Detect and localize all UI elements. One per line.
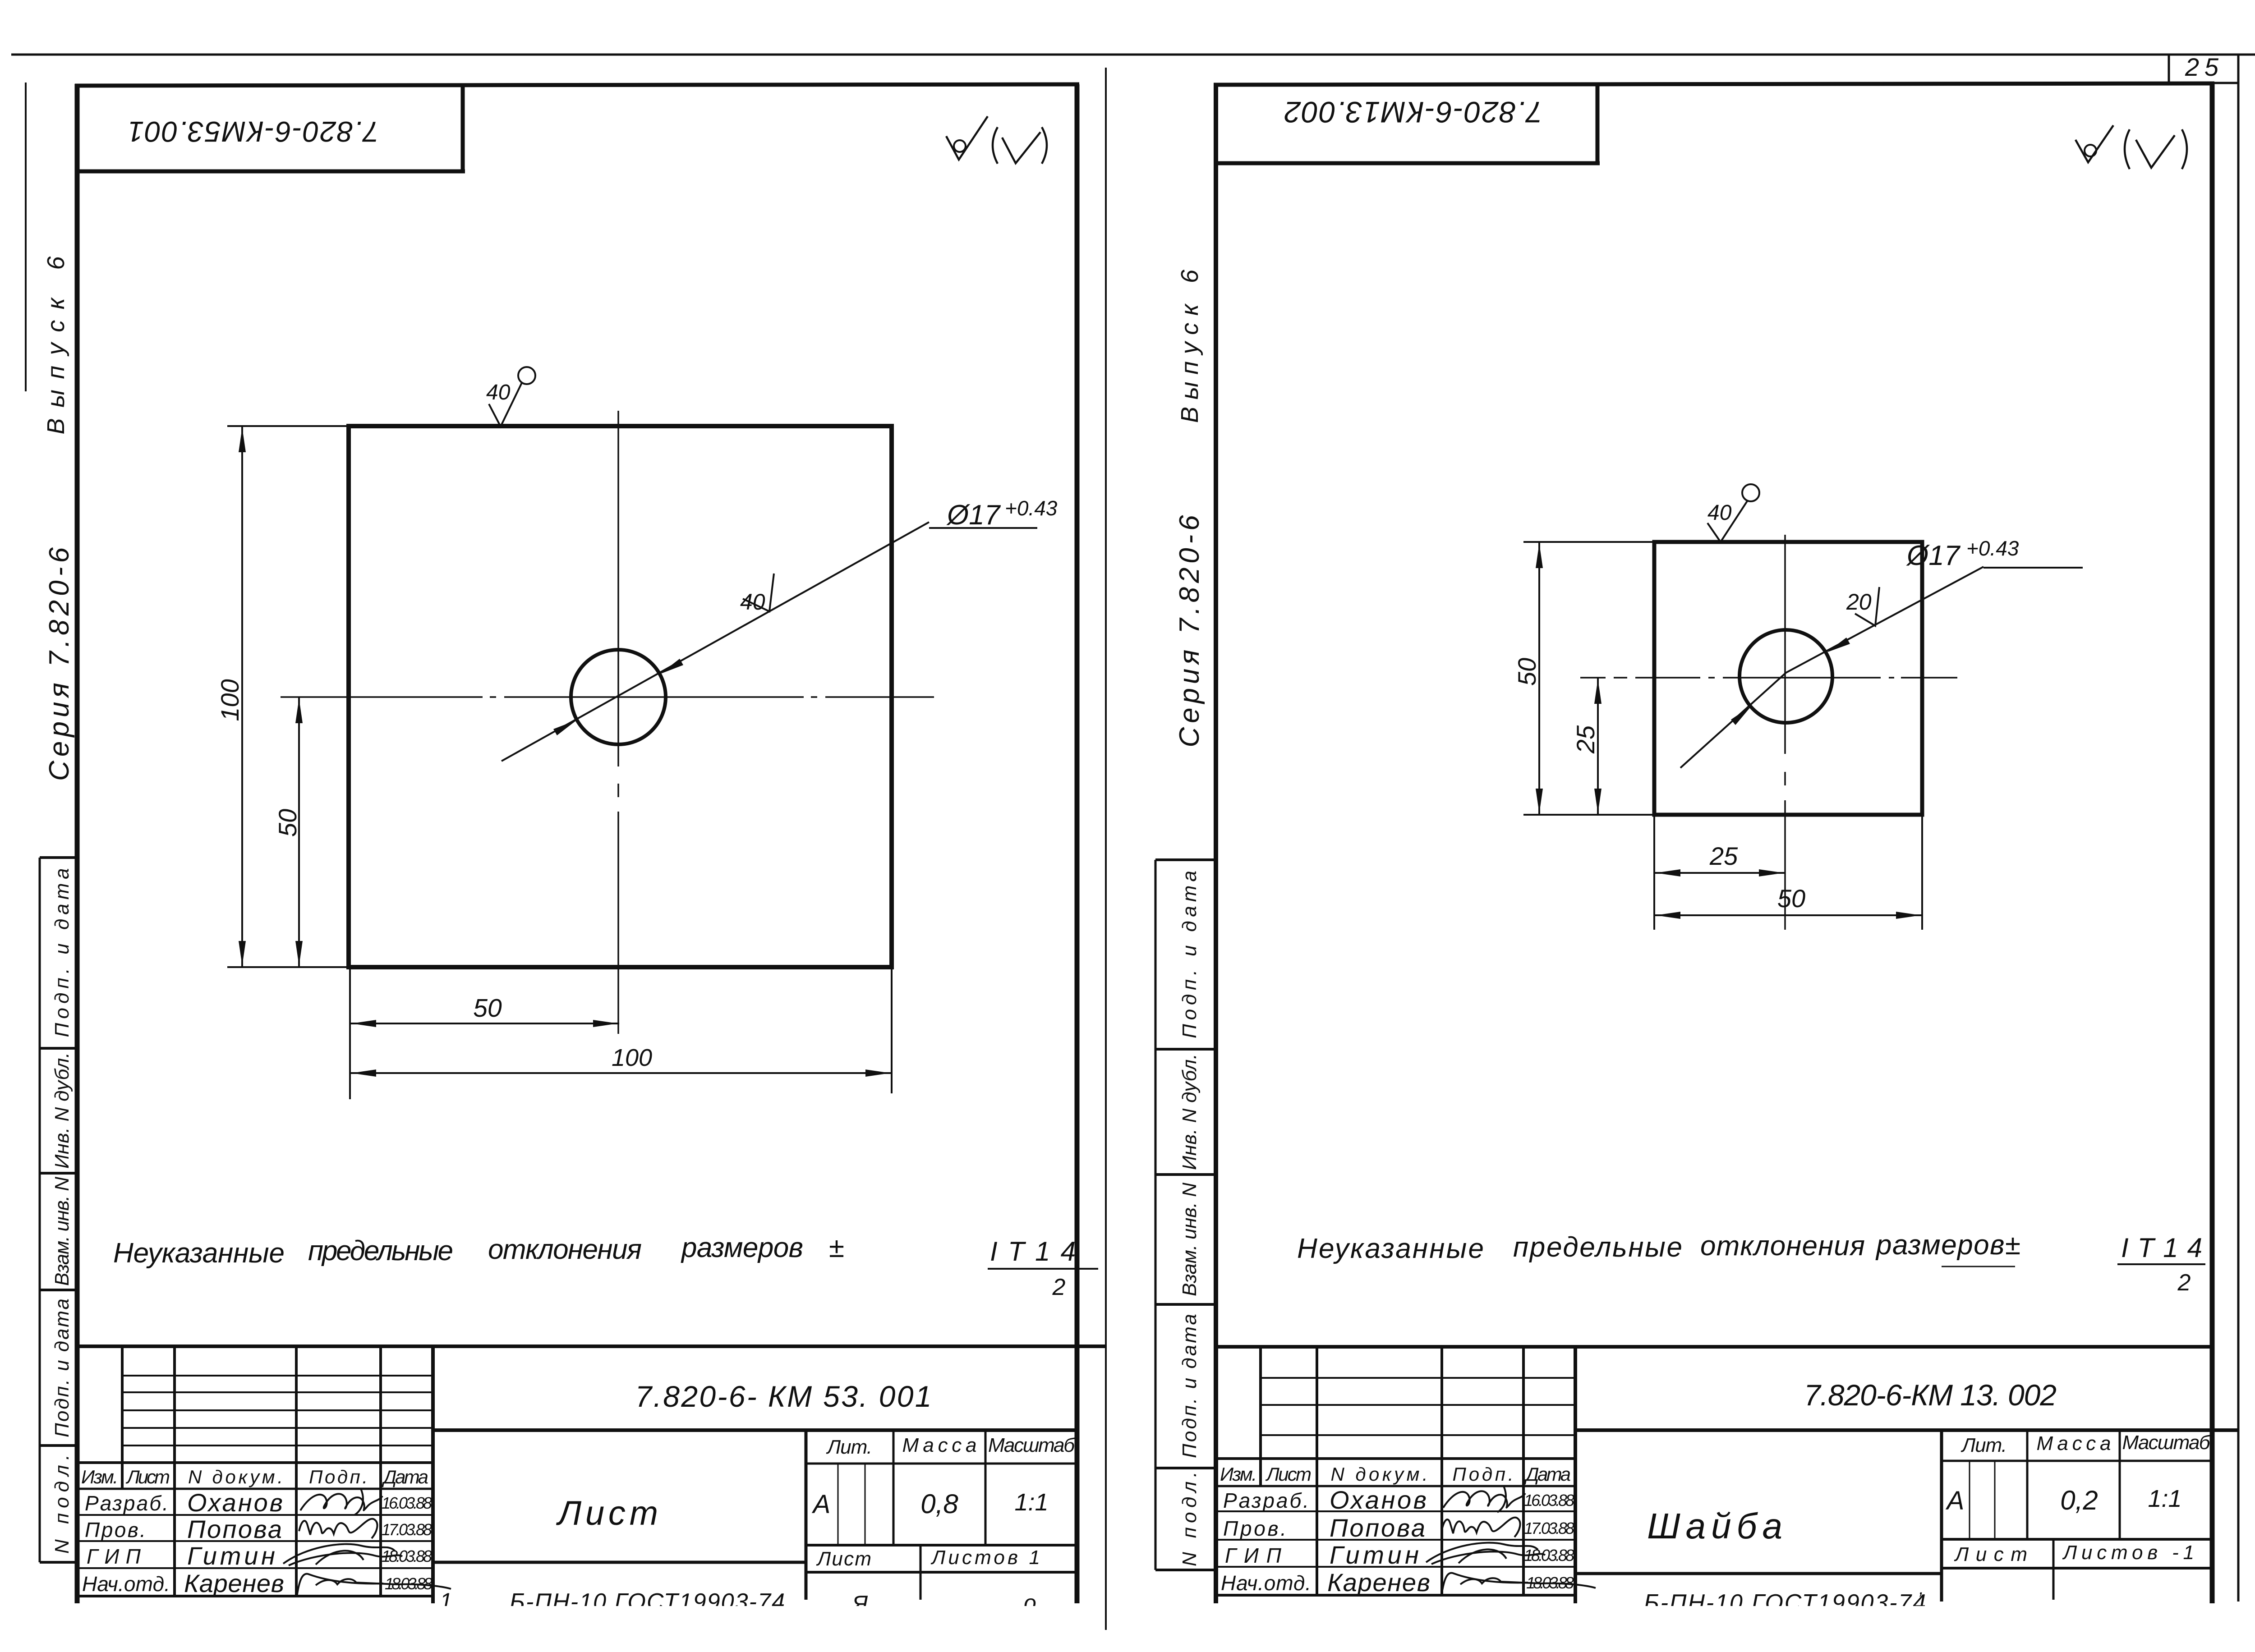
- svg-text:50: 50: [1777, 884, 1805, 913]
- svg-text:16.03.88: 16.03.88: [382, 1494, 432, 1512]
- svg-text:Серия 7.820-6: Серия 7.820-6: [1174, 515, 1205, 748]
- svg-text:1:1: 1:1: [2148, 1485, 2181, 1512]
- svg-text:Нач.отд.: Нач.отд.: [1221, 1571, 1311, 1595]
- svg-text:50: 50: [273, 809, 302, 837]
- svg-text:25: 25: [2185, 53, 2219, 81]
- svg-text:А: А: [812, 1490, 831, 1519]
- svg-text:Лист: Лист: [556, 1494, 658, 1533]
- svg-text:А: А: [1946, 1486, 1965, 1515]
- svg-text:Листов 1: Листов 1: [930, 1546, 1040, 1569]
- svg-text:Подп. и дата: Подп. и дата: [1178, 871, 1201, 1038]
- svg-text:50: 50: [473, 994, 502, 1023]
- svg-text:Масса: Масса: [2037, 1432, 2111, 1455]
- svg-text:Масса: Масса: [902, 1434, 977, 1456]
- svg-text:Попова: Попова: [1330, 1514, 1425, 1542]
- svg-text:Ø17: Ø17: [946, 500, 1001, 531]
- svg-text:Взам. инв. N: Взам. инв. N: [51, 1177, 73, 1286]
- svg-text:7.820-6-КМ53.001: 7.820-6-КМ53.001: [128, 115, 379, 148]
- svg-text:Дата: Дата: [1524, 1464, 1571, 1485]
- svg-text:IT14: IT14: [2121, 1233, 2202, 1263]
- svg-text:17.03.88: 17.03.88: [382, 1520, 432, 1539]
- svg-text:Выпуск 6: Выпуск 6: [42, 256, 69, 435]
- svg-text:Лист: Лист: [816, 1548, 871, 1570]
- svg-text:Подп. и дата: Подп. и дата: [51, 868, 73, 1037]
- svg-text:Подп. и дата: Подп. и дата: [51, 1299, 73, 1437]
- svg-text:,: ,: [1919, 1579, 1924, 1598]
- svg-text:Неуказанные: Неуказанные: [113, 1238, 285, 1269]
- svg-text:отклонения: отклонения: [1700, 1230, 1865, 1262]
- svg-text:+0.43: +0.43: [1966, 537, 2019, 560]
- svg-text:Подп. и дата: Подп. и дата: [1178, 1314, 1201, 1458]
- svg-text:ГИП: ГИП: [1225, 1544, 1282, 1567]
- svg-text:Разраб.: Разраб.: [1223, 1489, 1309, 1512]
- svg-text:IT14: IT14: [990, 1236, 1076, 1267]
- svg-text:Неуказанные: Неуказанные: [1297, 1233, 1484, 1264]
- svg-text:Оханов: Оханов: [1330, 1486, 1427, 1514]
- svg-text:предельные: предельные: [308, 1235, 453, 1267]
- svg-text:2: 2: [2177, 1270, 2191, 1296]
- svg-text:0,2: 0,2: [2060, 1485, 2098, 1515]
- svg-text:размеров: размеров: [681, 1232, 803, 1263]
- svg-text:предельные: предельные: [1513, 1232, 1682, 1263]
- svg-text:Каренев: Каренев: [184, 1569, 284, 1597]
- svg-text:Дата: Дата: [382, 1466, 428, 1487]
- svg-text:N докум.: N докум.: [1331, 1464, 1428, 1485]
- svg-text:2: 2: [1052, 1274, 1066, 1300]
- svg-text:Оханов: Оханов: [187, 1488, 283, 1517]
- svg-text:Лист: Лист: [125, 1466, 170, 1487]
- svg-text:Масштаб: Масштаб: [2122, 1432, 2211, 1454]
- svg-text:17.03.88: 17.03.88: [1524, 1519, 1574, 1537]
- svg-text:Лит.: Лит.: [826, 1436, 872, 1458]
- svg-text:100: 100: [612, 1044, 652, 1071]
- svg-text:40: 40: [486, 381, 511, 404]
- svg-text:Пров.: Пров.: [85, 1518, 146, 1542]
- svg-text:Подп.: Подп.: [309, 1466, 368, 1487]
- svg-text:Пров.: Пров.: [1223, 1517, 1286, 1540]
- svg-text:Шайба: Шайба: [1647, 1506, 1782, 1546]
- svg-text:+0.43: +0.43: [1005, 496, 1058, 520]
- svg-text:Лист: Лист: [1265, 1464, 1312, 1485]
- svg-text:16.03.88: 16.03.88: [1524, 1491, 1574, 1510]
- svg-text:1:1: 1:1: [1014, 1489, 1048, 1516]
- svg-text:Лит.: Лит.: [1960, 1434, 2007, 1456]
- svg-text:Подп.: Подп.: [1453, 1464, 1514, 1485]
- svg-text:25: 25: [1571, 725, 1600, 754]
- svg-text:100: 100: [216, 679, 244, 721]
- svg-text:Нач.отд.: Нач.отд.: [82, 1572, 170, 1596]
- svg-text:Взам. инв. N: Взам. инв. N: [1178, 1183, 1201, 1296]
- svg-text:Инв. N дубл.: Инв. N дубл.: [51, 1052, 73, 1169]
- svg-text:N докум.: N докум.: [188, 1466, 283, 1487]
- svg-text:Серия 7.820-6: Серия 7.820-6: [44, 547, 75, 781]
- svg-text:Изм.: Изм.: [1220, 1464, 1257, 1485]
- svg-text:Изм.: Изм.: [81, 1466, 118, 1487]
- svg-text:Ø17: Ø17: [1906, 540, 1961, 571]
- svg-text:7.820-6-КМ 13. 002: 7.820-6-КМ 13. 002: [1804, 1378, 2057, 1412]
- svg-text:отклонения: отклонения: [488, 1234, 642, 1265]
- svg-text:Инв. N дубл.: Инв. N дубл.: [1178, 1054, 1201, 1170]
- svg-text:Разраб.: Разраб.: [85, 1491, 168, 1515]
- svg-text:Масштаб: Масштаб: [988, 1434, 1076, 1456]
- svg-text:7.820-6- КМ 53. 001: 7.820-6- КМ 53. 001: [635, 1380, 932, 1413]
- svg-text:0,8: 0,8: [920, 1489, 958, 1519]
- svg-text:Листов -1: Листов -1: [2062, 1542, 2194, 1564]
- svg-text:Гитин: Гитин: [1330, 1541, 1419, 1569]
- svg-text:7.820-6-КМ13.002: 7.820-6-КМ13.002: [1284, 96, 1543, 129]
- svg-text:Выпуск 6: Выпуск 6: [1176, 269, 1203, 423]
- svg-text:N подл.: N подл.: [1178, 1472, 1201, 1566]
- svg-text:20: 20: [1846, 589, 1872, 615]
- svg-text:Гитин: Гитин: [187, 1542, 275, 1570]
- svg-text:40: 40: [740, 589, 765, 615]
- svg-text:размеров±: размеров±: [1875, 1230, 2020, 1261]
- svg-text:Попова: Попова: [187, 1515, 282, 1543]
- svg-text:40: 40: [1707, 501, 1732, 525]
- svg-text:±: ±: [829, 1232, 844, 1263]
- svg-text:50: 50: [1513, 658, 1541, 686]
- svg-text:Каренев: Каренев: [1327, 1568, 1430, 1597]
- svg-text:N подл.: N подл.: [51, 1455, 73, 1554]
- svg-text:ГИП: ГИП: [87, 1545, 141, 1568]
- svg-text:25: 25: [1709, 842, 1738, 870]
- svg-text:Лист: Лист: [1954, 1543, 2027, 1565]
